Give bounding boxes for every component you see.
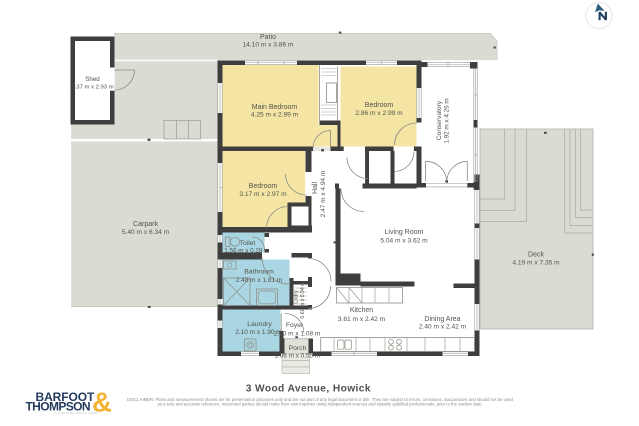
svg-text:Toilet: Toilet bbox=[240, 240, 256, 247]
svg-text:4.19 m x 7.35 m: 4.19 m x 7.35 m bbox=[512, 260, 560, 267]
svg-text:Bathroom: Bathroom bbox=[244, 269, 274, 276]
svg-text:1.06 m x 0.55 m: 1.06 m x 0.55 m bbox=[274, 352, 320, 359]
svg-text:Carpark: Carpark bbox=[133, 221, 158, 228]
svg-text:Shed: Shed bbox=[85, 76, 100, 83]
svg-text:5.04 m x 3.62 m: 5.04 m x 3.62 m bbox=[380, 238, 428, 245]
svg-text:5.40 m x 6.34 m: 5.40 m x 6.34 m bbox=[122, 229, 170, 236]
svg-text:Main Bedroom: Main Bedroom bbox=[252, 104, 298, 111]
svg-text:Lndry: Lndry bbox=[293, 290, 299, 304]
svg-text:Porch: Porch bbox=[289, 345, 307, 352]
svg-text:Foyer: Foyer bbox=[286, 322, 304, 329]
svg-text:0.69 m x 0.94 m: 0.69 m x 0.94 m bbox=[300, 281, 306, 318]
svg-text:3 Wood Avenue, Howick: 3 Wood Avenue, Howick bbox=[246, 383, 371, 394]
svg-text:Kitchen: Kitchen bbox=[350, 307, 373, 314]
svg-text:2.47 m x 4.94 m: 2.47 m x 4.94 m bbox=[320, 171, 327, 218]
svg-text:Bedroom: Bedroom bbox=[365, 102, 394, 109]
svg-text:3.17 m x 2.97 m: 3.17 m x 2.97 m bbox=[239, 191, 287, 198]
svg-text:2.40 m x 2.42 m: 2.40 m x 2.42 m bbox=[419, 324, 467, 331]
svg-text:Laundry: Laundry bbox=[247, 321, 272, 328]
svg-text:Deck: Deck bbox=[528, 252, 544, 259]
svg-text:Living Room: Living Room bbox=[385, 229, 424, 236]
svg-text:14.10 m x 3.86 m: 14.10 m x 3.86 m bbox=[243, 41, 294, 48]
svg-text:4.25 m x 2.99 m: 4.25 m x 2.99 m bbox=[251, 111, 299, 118]
svg-text:1.56 m x 0.28 m: 1.56 m x 0.28 m bbox=[224, 247, 269, 254]
svg-text:1.92 m x 4.26 m: 1.92 m x 4.26 m bbox=[444, 98, 451, 143]
svg-text:2.20 m x 1.08 m: 2.20 m x 1.08 m bbox=[274, 330, 321, 337]
svg-text:Hall: Hall bbox=[312, 182, 319, 195]
svg-text:1.37 m x 2.93 m: 1.37 m x 2.93 m bbox=[71, 85, 113, 91]
svg-text:Patio: Patio bbox=[260, 34, 276, 41]
svg-text:Conservatory: Conservatory bbox=[436, 100, 443, 140]
svg-text:as a sole and accurate referen: as a sole and accurate reference. Intere… bbox=[157, 402, 482, 407]
svg-text:2.48 m x 1.81 m: 2.48 m x 1.81 m bbox=[236, 277, 283, 284]
svg-text:LICENSED REAA 2008: LICENSED REAA 2008 bbox=[55, 411, 97, 415]
svg-text:2.86 m x 2.99 m: 2.86 m x 2.99 m bbox=[355, 110, 403, 117]
svg-text:3.61 m x 2.42 m: 3.61 m x 2.42 m bbox=[338, 316, 386, 323]
svg-text:Bedroom: Bedroom bbox=[249, 183, 278, 190]
svg-text:Dining Area: Dining Area bbox=[424, 316, 460, 323]
